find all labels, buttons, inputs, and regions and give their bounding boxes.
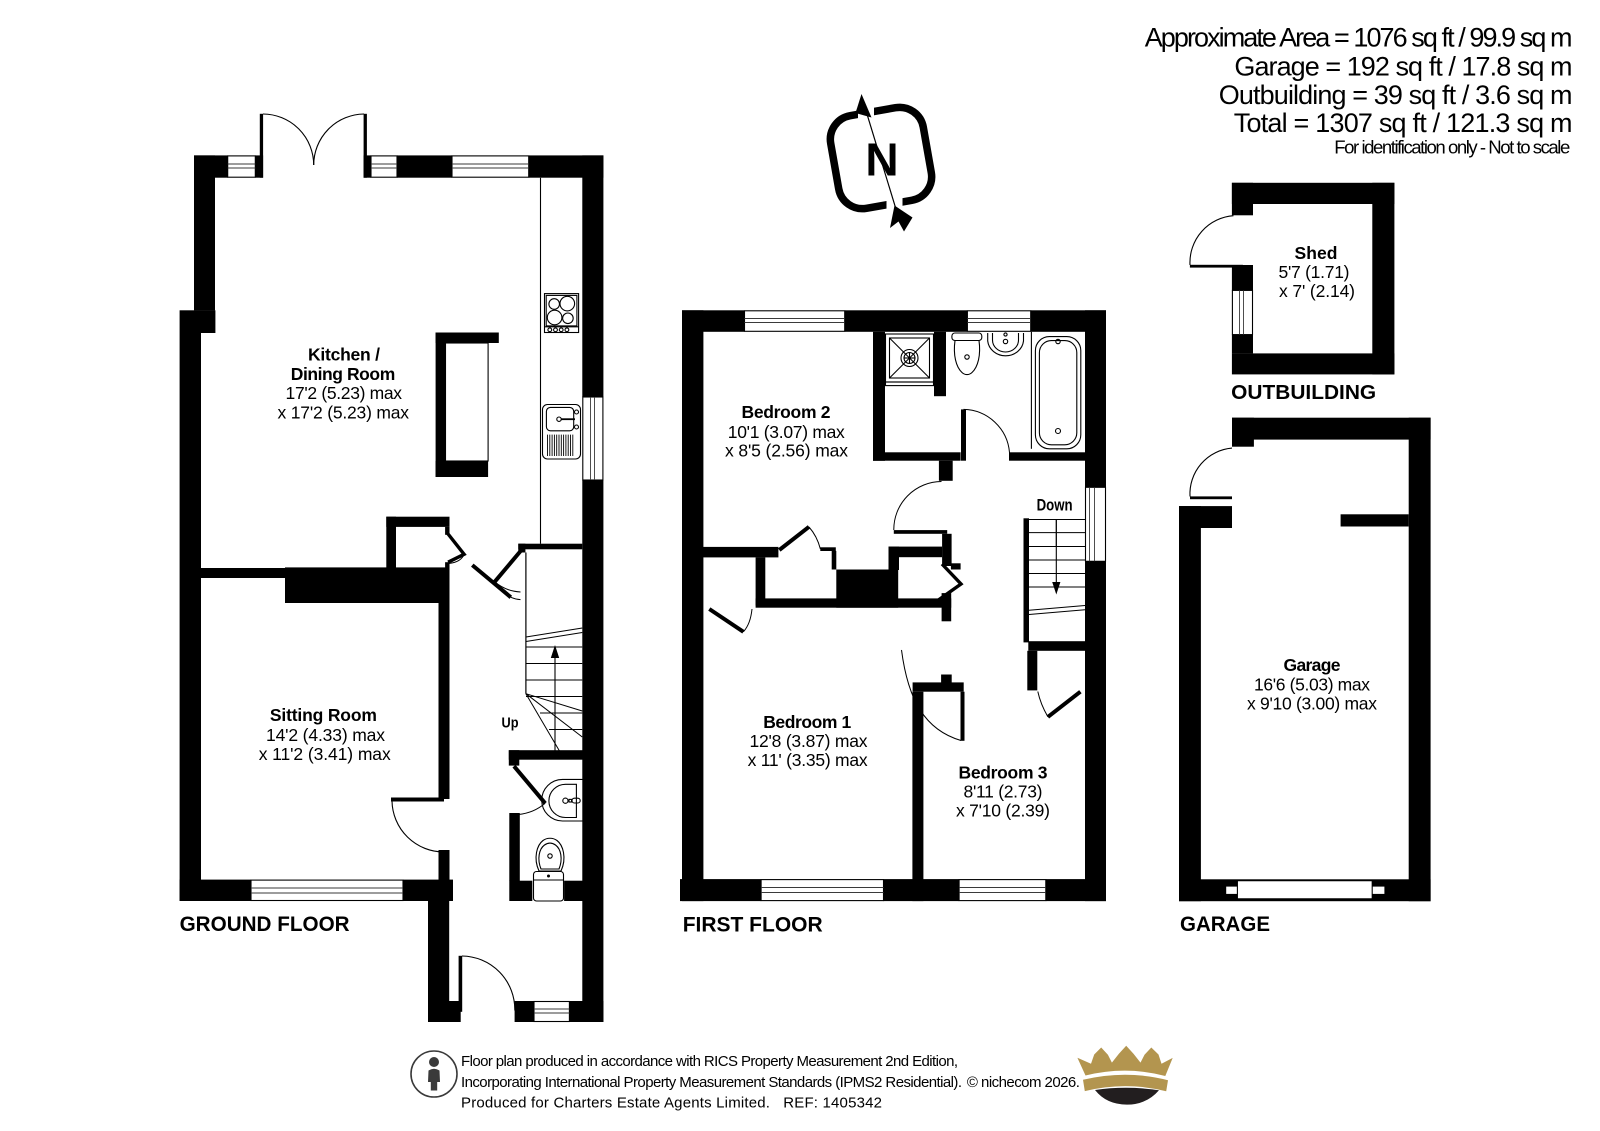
svg-text:Bedroom 3: Bedroom 3 (959, 763, 1048, 783)
svg-text:x 17'2 (5.23) max: x 17'2 (5.23) max (278, 402, 410, 422)
svg-text:Approximate Area = 1076 sq ft: Approximate Area = 1076 sq ft / 99.9 sq … (1145, 22, 1573, 52)
svg-text:GROUND FLOOR: GROUND FLOOR (180, 912, 350, 936)
svg-text:Total = 1307 sq ft / 121.3 sq: Total = 1307 sq ft / 121.3 sq m (1234, 108, 1573, 138)
svg-text:Down: Down (1037, 497, 1073, 515)
svg-text:x 7' (2.14): x 7' (2.14) (1279, 281, 1355, 301)
svg-text:FIRST FLOOR: FIRST FLOOR (683, 912, 823, 936)
svg-text:Outbuilding = 39 sq ft / 3.6 s: Outbuilding = 39 sq ft / 3.6 sq m (1219, 80, 1573, 110)
svg-text:Bedroom 2: Bedroom 2 (742, 402, 831, 422)
svg-text:10'1 (3.07) max: 10'1 (3.07) max (728, 422, 845, 442)
svg-text:16'6 (5.03) max: 16'6 (5.03) max (1254, 675, 1370, 695)
svg-text:Dining Room: Dining Room (291, 364, 396, 384)
svg-text:12'8 (3.87) max: 12'8 (3.87) max (750, 731, 868, 751)
svg-text:Kitchen /: Kitchen / (308, 345, 380, 365)
svg-text:© nichecom 2026.: © nichecom 2026. (967, 1074, 1080, 1091)
svg-text:OUTBUILDING: OUTBUILDING (1231, 382, 1376, 404)
svg-text:5'7 (1.71): 5'7 (1.71) (1279, 262, 1350, 282)
svg-text:Garage: Garage (1284, 655, 1341, 675)
svg-text:Incorporating International Pr: Incorporating International Property Mea… (461, 1074, 962, 1091)
svg-text:Up: Up (502, 715, 519, 732)
svg-text:N: N (865, 134, 898, 186)
svg-text:Produced for Charters Estate A: Produced for Charters Estate Agents Limi… (461, 1095, 882, 1112)
svg-text:8'11 (2.73): 8'11 (2.73) (964, 781, 1043, 801)
svg-text:Garage = 192 sq ft / 17.8 sq m: Garage = 192 sq ft / 17.8 sq m (1234, 51, 1572, 81)
svg-text:x 11'2 (3.41) max: x 11'2 (3.41) max (259, 744, 391, 764)
svg-text:17'2 (5.23) max: 17'2 (5.23) max (286, 383, 403, 403)
svg-text:x 8'5 (2.56) max: x 8'5 (2.56) max (725, 441, 848, 461)
svg-text:For identification only - Not: For identification only - Not to scale (1334, 136, 1570, 157)
svg-text:x 11' (3.35) max: x 11' (3.35) max (748, 750, 868, 770)
svg-text:Floor plan produced in accorda: Floor plan produced in accordance with R… (461, 1053, 958, 1070)
svg-text:Sitting Room: Sitting Room (270, 705, 377, 725)
svg-text:GARAGE: GARAGE (1180, 912, 1270, 936)
svg-text:Shed: Shed (1295, 243, 1338, 263)
svg-text:x 9'10 (3.00) max: x 9'10 (3.00) max (1247, 694, 1377, 714)
svg-text:x 7'10 (2.39): x 7'10 (2.39) (956, 801, 1050, 821)
svg-text:14'2 (4.33) max: 14'2 (4.33) max (266, 725, 385, 745)
svg-text:Bedroom 1: Bedroom 1 (763, 712, 851, 732)
